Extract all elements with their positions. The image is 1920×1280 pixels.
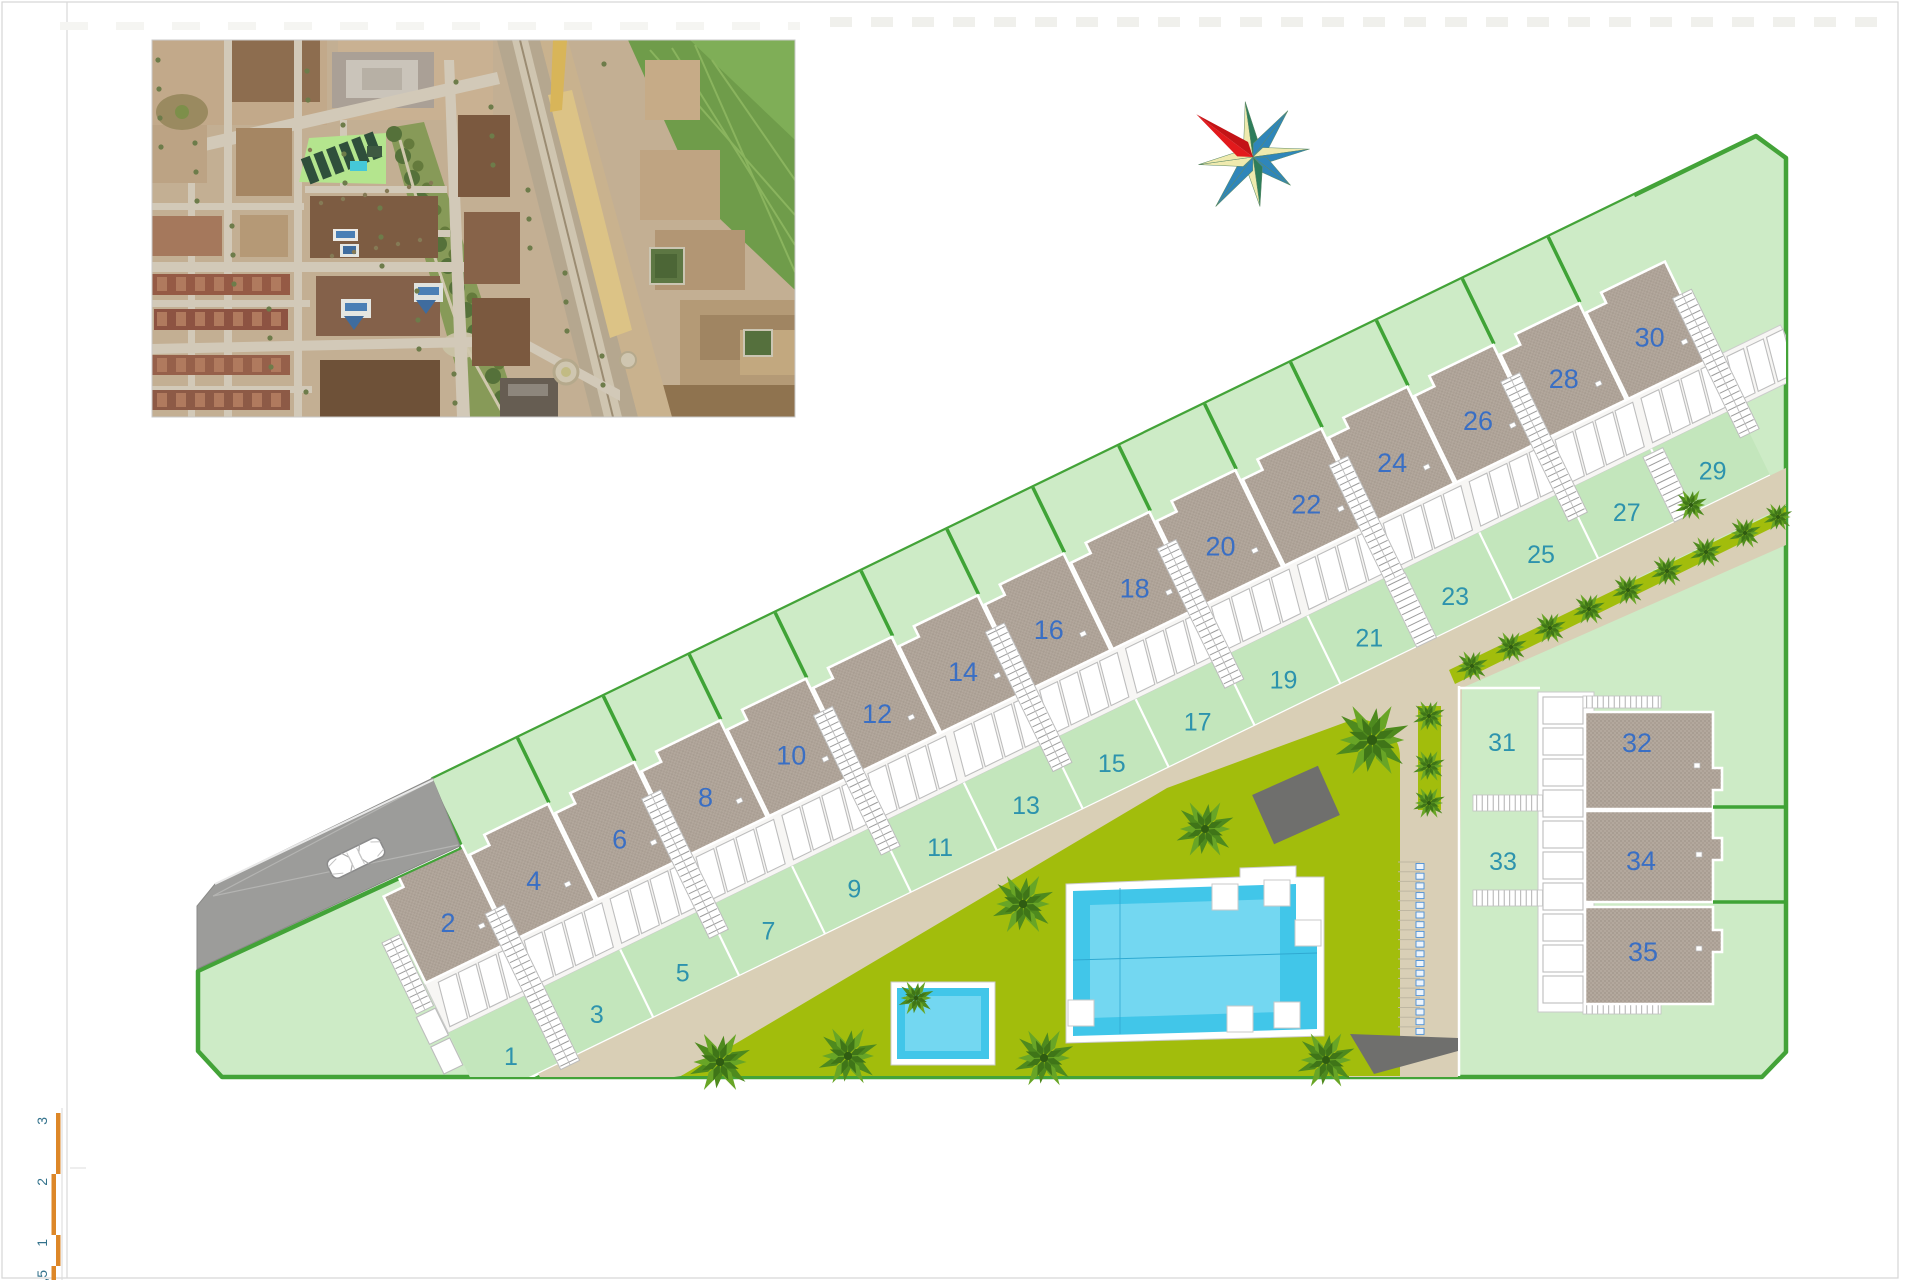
svg-text:5: 5 — [676, 959, 690, 987]
svg-text:2: 2 — [34, 1178, 50, 1186]
svg-text:23: 23 — [1441, 583, 1469, 611]
svg-text:1: 1 — [34, 1239, 50, 1247]
svg-text:4: 4 — [526, 866, 541, 896]
svg-text:9: 9 — [847, 876, 861, 904]
svg-text:18: 18 — [1120, 573, 1150, 603]
svg-text:17: 17 — [1184, 708, 1212, 736]
svg-text:34: 34 — [1626, 846, 1656, 876]
svg-text:25: 25 — [1527, 541, 1555, 569]
svg-text:3: 3 — [590, 1001, 604, 1029]
svg-text:19: 19 — [1270, 667, 1298, 695]
svg-text:11: 11 — [927, 834, 953, 862]
svg-text:15: 15 — [1098, 750, 1126, 778]
svg-text:6: 6 — [612, 824, 627, 854]
svg-text:7: 7 — [762, 918, 776, 946]
svg-text:8: 8 — [698, 783, 713, 813]
svg-text:32: 32 — [1622, 728, 1652, 758]
svg-text:21: 21 — [1355, 625, 1383, 653]
svg-text:30: 30 — [1635, 322, 1665, 352]
svg-text:27: 27 — [1613, 499, 1641, 527]
svg-text:16: 16 — [1034, 615, 1064, 645]
svg-text:14: 14 — [948, 657, 978, 687]
svg-text:0,5: 0,5 — [34, 1270, 50, 1280]
svg-text:12: 12 — [862, 699, 892, 729]
svg-text:3: 3 — [34, 1117, 50, 1125]
svg-text:29: 29 — [1699, 457, 1727, 485]
svg-text:1: 1 — [504, 1043, 518, 1071]
svg-text:24: 24 — [1377, 448, 1407, 478]
svg-text:31: 31 — [1488, 729, 1516, 757]
svg-text:26: 26 — [1463, 406, 1493, 436]
svg-text:22: 22 — [1291, 490, 1321, 520]
svg-text:10: 10 — [776, 741, 806, 771]
svg-text:2: 2 — [440, 908, 455, 938]
svg-text:28: 28 — [1549, 364, 1579, 394]
svg-text:13: 13 — [1012, 792, 1040, 820]
svg-text:33: 33 — [1489, 848, 1517, 876]
svg-text:35: 35 — [1628, 937, 1658, 967]
svg-text:20: 20 — [1205, 532, 1235, 562]
